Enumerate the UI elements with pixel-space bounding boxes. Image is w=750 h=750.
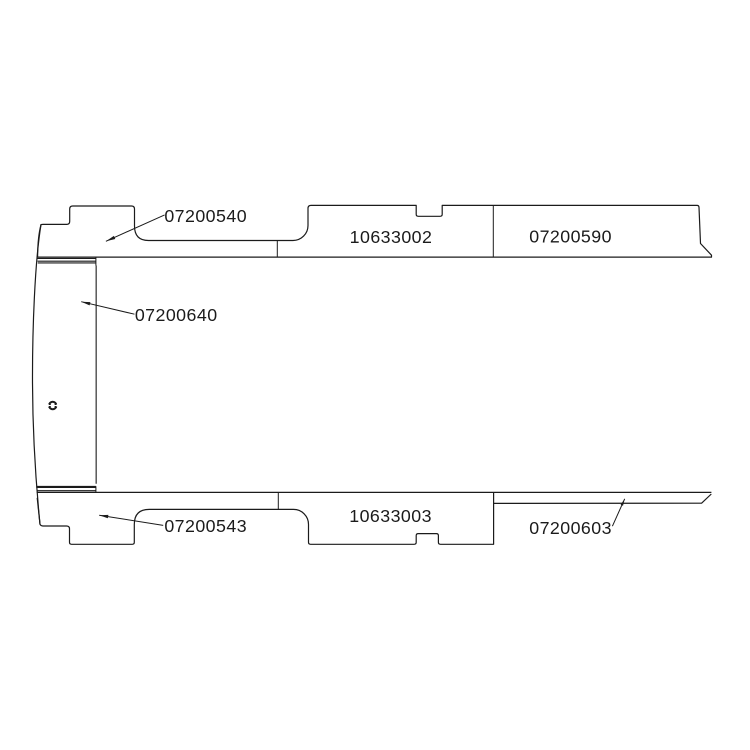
svg-text:07200640: 07200640 <box>135 305 218 325</box>
svg-text:10633002: 10633002 <box>350 227 433 247</box>
svg-text:07200603: 07200603 <box>529 518 612 538</box>
svg-text:07200543: 07200543 <box>164 516 247 536</box>
svg-text:10633003: 10633003 <box>349 506 432 526</box>
svg-text:07200590: 07200590 <box>529 227 612 247</box>
svg-text:07200540: 07200540 <box>164 206 247 226</box>
